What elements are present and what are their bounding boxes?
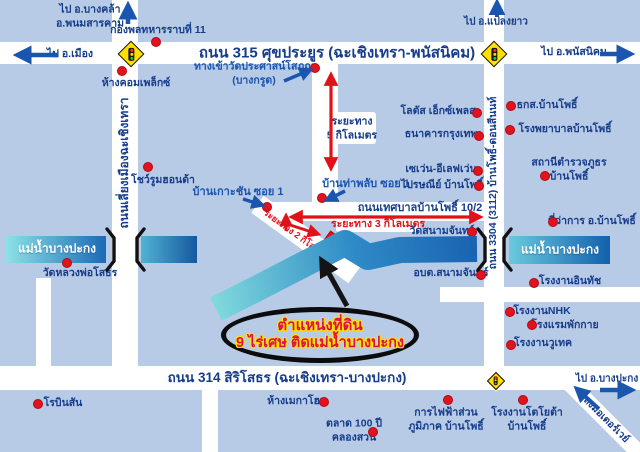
poi-seven-eleven-label: เซเว่น-อีเลฟเว่น <box>405 163 476 177</box>
river-left-2 <box>141 236 197 263</box>
poi-megahome-label: ห้างเมกาโฮม <box>267 395 327 409</box>
poi-baac-banpho-dot <box>506 101 516 111</box>
poi-nhk-factory-dot <box>505 307 515 317</box>
poi-phakkai-hotel-dot <box>527 320 537 330</box>
land-callout-ellipse: ตำแหน่งที่ดิน 9 ไร่เศษ ติดแม่น้ำบางปะกง <box>221 307 419 363</box>
poi-army-division-11-label: กองพลทหารราบที่ 11 <box>110 24 206 38</box>
poi-wat-sanam-chan-dot <box>467 227 477 237</box>
poi-bangkok-bank-label: ธนาคารกรุงเทพ <box>405 128 478 142</box>
poi-bangkok-bank-dot <box>474 131 484 141</box>
poi-pea-banpho-label: การไฟฟ้าส่วนภูมิภาค บ้านโพธิ์ <box>408 406 483 433</box>
poi-phakkai-hotel-label: โรงแรมพักกาย <box>531 319 598 333</box>
callout-wat-entrance-line: ทางเข้าวัดประศาสน์โสภณ <box>194 60 314 74</box>
poi-wutec-factory-label: โรงงานวูเทค <box>514 337 572 351</box>
road-factory <box>440 287 640 302</box>
poi-obt-sanam-chan-dot <box>476 270 486 280</box>
distance-5km-label-line: ระยะทาง <box>327 115 377 129</box>
land-callout-line-2: 9 ไร่เศษ ติดแม่น้ำบางปะกง <box>236 335 404 352</box>
poi-robinson-dot <box>33 399 43 409</box>
poi-wutec-factory-dot <box>506 340 516 350</box>
callout-ban-tha-phlap: บ้านท่าพลับ ซอย 1 <box>322 177 410 191</box>
poi-wat-luang-pho-sothon-label: วัดหลวงพ่อโสธร <box>43 267 117 281</box>
traffic-light-icon <box>494 377 498 386</box>
direction-mueang: ไป อ.เมือง <box>47 48 93 62</box>
river-label-left: แม่น้ำบางปะกง <box>18 240 96 259</box>
poi-intouch-factory-dot <box>529 278 539 288</box>
poi-post-office-label: ไปรษณีย์ บ้านโพธิ์ <box>401 179 483 193</box>
river-label-right: แม่น้ำบางปะกง <box>521 241 599 260</box>
map-canvas: ตำแหน่งที่ดิน 9 ไร่เศษ ติดแม่น้ำบางปะกง … <box>0 0 640 452</box>
road-314-label: ถนน 314 สิริโสธร (ฉะเชิงเทรา-บางปะกง) <box>168 369 407 387</box>
poi-seven-eleven-dot <box>473 166 483 176</box>
callout-wat-entrance: ทางเข้าวัดประศาสน์โสภณ(บางกรูด) <box>194 60 314 87</box>
poi-complex-mall-label: ห้างคอมเพล็กซ์ <box>102 77 171 91</box>
poi-wat-sanam-chan-label: วัดสนามจันทร์ <box>409 225 474 239</box>
road-liang-mueang-label: ถนนเลี่ยงเมืองฉะเชิงเทรา <box>117 97 133 228</box>
poi-district-office-dot <box>548 217 558 227</box>
poi-post-office-dot <box>474 181 484 191</box>
poi-toyota-factory-label: โรงงานโตโยต้าบ้านโพธิ์ <box>491 406 563 433</box>
poi-banpho-hospital-dot <box>505 125 515 135</box>
road-motorway-label: ลงมอเตอร์เวย์ <box>580 394 631 445</box>
distance-5km-label-line: 5 กิโลเมตร <box>327 129 377 143</box>
poi-baac-banpho-label: ธกส.บ้านโพธิ์ <box>517 99 578 113</box>
poi-ban-tha-phlap-dot-dot <box>317 193 327 203</box>
poi-honda-showroom-label: โชว์รูมฮอนด้า <box>131 174 195 188</box>
direction-bangkhla-line: ไป อ.บางคล้า <box>56 3 124 17</box>
land-callout-line-1: ตำแหน่งที่ดิน <box>277 317 362 335</box>
direction-bangpakong: ไป อ.บางปะกง <box>576 373 638 386</box>
road-below-314 <box>202 390 218 452</box>
direction-phanatnikhom: ไป อ.พนัสนิคม <box>541 46 607 60</box>
poi-ban-koh-chan-dot-dot <box>262 202 272 212</box>
traffic-light-icon <box>128 48 134 61</box>
poi-police-station-dot <box>540 171 550 181</box>
road-tessaban-label: ถนนเทศบาลบ้านโพธิ์ 10/2 <box>358 201 483 215</box>
poi-pea-banpho-label-line: การไฟฟ้าส่วน <box>408 406 483 420</box>
poi-nhk-factory-label: โรงงานNHK <box>513 305 570 319</box>
poi-wat-luang-pho-sothon-dot <box>62 258 72 268</box>
poi-market-100y-dot <box>368 427 378 437</box>
poi-lotus-express-label: โลตัส เอ็กซ์เพลส <box>401 105 476 119</box>
poi-toyota-factory-dot <box>518 395 528 405</box>
poi-wat-entrance-dot-dot <box>310 63 320 73</box>
distance-5km-label: ระยะทาง5 กิโลเมตร <box>327 115 377 142</box>
poi-complex-mall-dot <box>117 66 127 76</box>
poi-district-office-label: ที่ว่าการ อ.บ้านโพธิ์ <box>548 215 635 229</box>
poi-police-station-label-line: สถานีตำรวจภูธร <box>531 156 606 170</box>
poi-pea-banpho-dot <box>443 395 453 405</box>
callout-ban-koh-chan: บ้านเกาะชัน ซอย 1 <box>193 185 284 199</box>
road-3304-label: ถนน 3304 (3112) บ้านโพธิ์-ดอนสีนนท์ <box>487 97 501 270</box>
traffic-light-icon <box>491 48 497 61</box>
poi-honda-showroom-dot <box>143 162 153 172</box>
poi-lotus-express-dot <box>472 108 482 118</box>
poi-toyota-factory-label-line: โรงงานโตโยต้า <box>491 406 563 420</box>
poi-intouch-factory-label: โรงงานอินทัช <box>539 275 601 289</box>
callout-wat-entrance-line: (บางกรูด) <box>194 74 314 88</box>
poi-pea-banpho-label-line: ภูมิภาค บ้านโพธิ์ <box>408 420 483 434</box>
poi-robinson-label: โรบินสัน <box>44 397 83 411</box>
direction-plaengyao: ไป อ.แปลงยาว <box>464 16 528 29</box>
road-stub-left <box>36 278 51 368</box>
poi-banpho-hospital-label: โรงพยาบาลบ้านโพธิ์ <box>518 123 611 137</box>
poi-army-division-11-dot <box>151 37 161 47</box>
poi-toyota-factory-label-line: บ้านโพธิ์ <box>491 420 563 434</box>
poi-megahome-dot <box>319 397 329 407</box>
